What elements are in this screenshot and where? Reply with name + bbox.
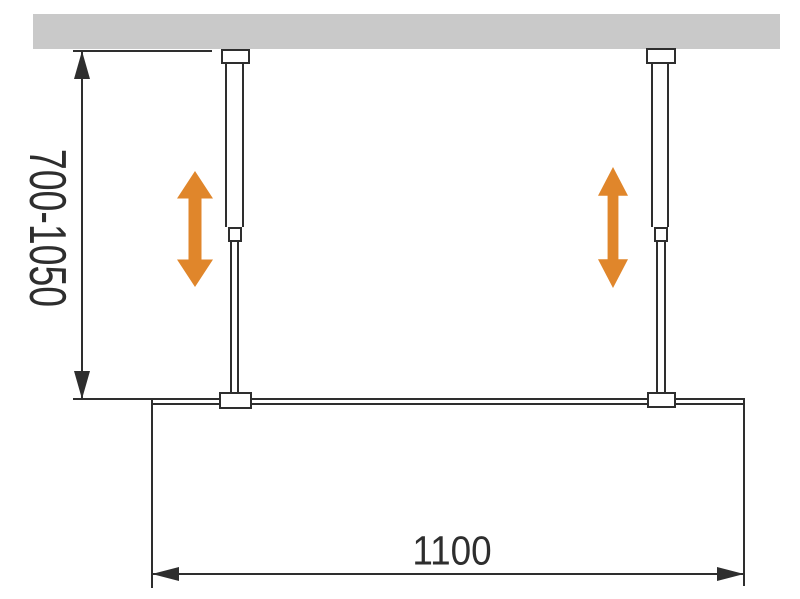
rod-lower-shaft-right [656,242,666,395]
width-dimension-label: 1100 [412,531,491,572]
glass-panel-left-edge [151,398,153,588]
adjustment-double-arrow-right-icon [598,167,628,288]
glass-clamp-right [647,392,676,408]
rod-adjustment-collar-right [654,227,668,242]
rod-lower-shaft-left [230,242,239,395]
height-arrow-down-icon [74,371,90,399]
installation-diagram: 700-1050 1100 [0,0,800,599]
rod-adjustment-collar-left [228,227,242,242]
extension-line-top [73,50,212,52]
ceiling-bracket-right [646,48,676,64]
width-arrow-right-icon [717,567,744,581]
height-arrow-up-icon [74,51,90,79]
ceiling-bar [33,14,780,49]
width-arrow-left-icon [152,567,179,581]
glass-panel-right-edge [743,398,745,586]
ceiling-bracket-left [221,49,250,64]
height-dimension-line [81,52,83,399]
rod-upper-tube-right [651,64,669,227]
adjustment-double-arrow-left-icon [177,171,213,287]
height-dimension-label: 700-1050 [21,149,73,307]
rod-upper-tube-left [225,64,244,227]
extension-line-bottom [73,398,153,400]
glass-clamp-left [219,392,252,409]
